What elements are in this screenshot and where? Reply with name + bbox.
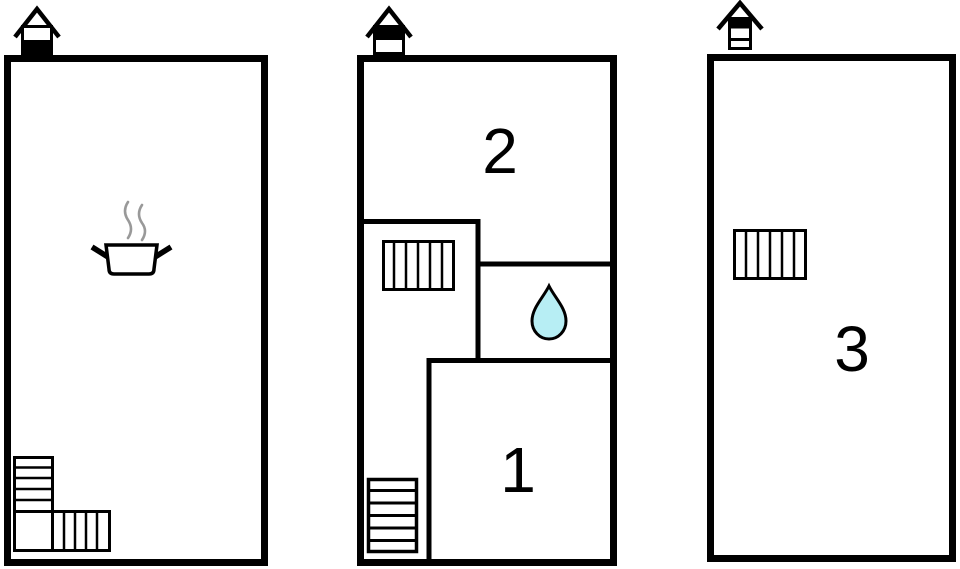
storey-indicator-ground (15, 9, 59, 55)
room-label-2: 2 (482, 115, 518, 187)
staircase-upper-icon (384, 241, 454, 290)
stair-landing (15, 512, 53, 551)
staircase-icon (735, 230, 806, 279)
floor-plan-second: 2 1 (360, 59, 614, 565)
room-label-3: 3 (834, 313, 870, 385)
stair-flight-vertical (15, 458, 53, 512)
room-label-1: 1 (500, 434, 536, 506)
staircase-lower-icon (368, 480, 417, 552)
floor-plan-third: 3 (711, 58, 953, 559)
floor-plan-diagram: 2 1 3 (0, 0, 960, 569)
active-storey-band-icon (373, 25, 405, 40)
outer-wall (711, 58, 953, 559)
floor-plans-svg: 2 1 3 (0, 0, 960, 569)
storey-indicator-third (718, 3, 762, 49)
active-storey-band-icon (728, 17, 752, 29)
active-storey-band-icon (21, 40, 53, 55)
storey-indicator-second (367, 9, 411, 54)
stair-flight-horizontal (53, 512, 110, 551)
pot-body-icon (106, 245, 157, 274)
floor-plan-ground (8, 59, 265, 563)
